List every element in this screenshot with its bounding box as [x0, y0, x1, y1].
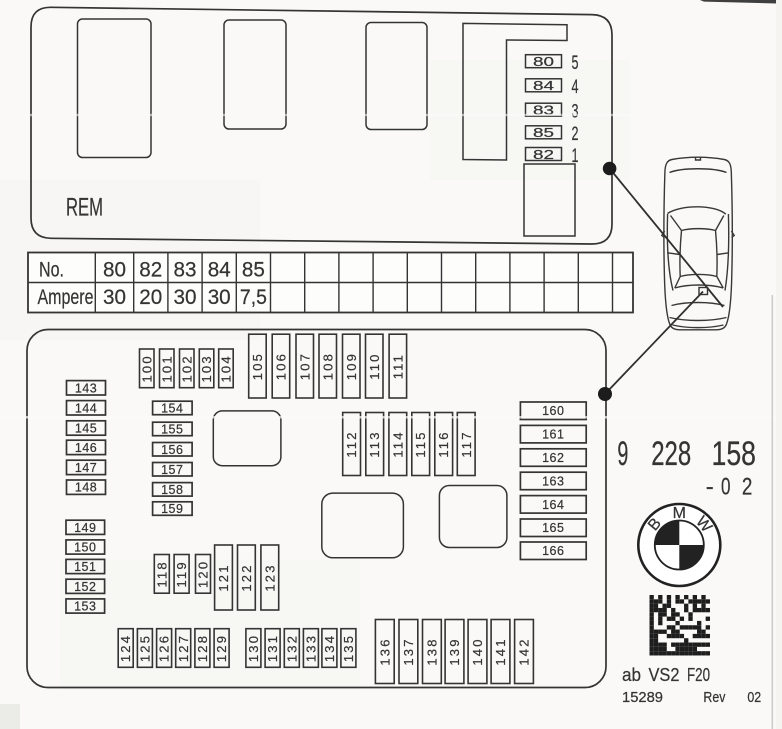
- svg-text:M: M: [673, 505, 686, 522]
- svg-text:30: 30: [208, 285, 231, 309]
- svg-text:138: 138: [424, 637, 439, 665]
- svg-text:REM: REM: [66, 194, 103, 222]
- svg-text:2: 2: [742, 474, 753, 501]
- svg-text:108: 108: [320, 352, 335, 380]
- svg-text:152: 152: [74, 580, 96, 594]
- svg-text:127: 127: [176, 634, 191, 662]
- svg-text:156: 156: [161, 443, 183, 457]
- svg-text:124: 124: [118, 634, 133, 662]
- svg-text:159: 159: [161, 502, 183, 516]
- svg-text:158: 158: [161, 483, 183, 497]
- svg-text:20: 20: [139, 285, 162, 309]
- svg-text:0: 0: [721, 474, 731, 501]
- svg-text:149: 149: [74, 521, 96, 535]
- svg-text:154: 154: [161, 401, 183, 415]
- svg-text:7,5: 7,5: [240, 285, 267, 309]
- svg-text:82: 82: [533, 147, 554, 162]
- svg-text:84: 84: [208, 258, 231, 282]
- svg-text:126: 126: [157, 634, 172, 662]
- svg-text:104: 104: [219, 354, 234, 382]
- svg-text:146: 146: [75, 441, 97, 455]
- svg-text:131: 131: [265, 634, 280, 662]
- svg-text:116: 116: [436, 430, 451, 457]
- svg-text:No.: No.: [39, 258, 64, 282]
- svg-text:132: 132: [284, 634, 299, 662]
- svg-text:153: 153: [74, 600, 96, 614]
- svg-text:105: 105: [250, 352, 265, 380]
- svg-text:125: 125: [138, 634, 153, 662]
- svg-text:141: 141: [493, 637, 508, 665]
- svg-text:2: 2: [572, 123, 579, 145]
- svg-text:165: 165: [542, 521, 564, 535]
- svg-text:110: 110: [367, 352, 382, 379]
- svg-text:140: 140: [470, 637, 485, 665]
- svg-text:84: 84: [533, 78, 554, 93]
- svg-text:134: 134: [322, 634, 337, 662]
- svg-text:F20: F20: [687, 665, 710, 685]
- svg-text:136: 136: [377, 637, 392, 665]
- svg-text:85: 85: [533, 125, 554, 140]
- svg-text:158: 158: [712, 435, 757, 473]
- svg-text:Rev: Rev: [703, 689, 725, 706]
- svg-text:117: 117: [459, 430, 474, 457]
- svg-text:119: 119: [174, 560, 189, 587]
- svg-text:130: 130: [246, 634, 261, 662]
- svg-text:80: 80: [103, 258, 126, 282]
- svg-text:133: 133: [303, 634, 318, 662]
- svg-text:145: 145: [75, 422, 97, 436]
- svg-text:129: 129: [214, 634, 229, 662]
- svg-text:102: 102: [179, 354, 194, 382]
- svg-text:137: 137: [401, 637, 416, 665]
- svg-text:5: 5: [572, 52, 579, 74]
- svg-text:114: 114: [390, 430, 405, 457]
- svg-text:113: 113: [367, 430, 382, 457]
- svg-text:9: 9: [617, 435, 628, 473]
- svg-text:151: 151: [74, 560, 96, 574]
- svg-text:144: 144: [75, 401, 97, 415]
- svg-text:30: 30: [174, 285, 197, 309]
- svg-text:106: 106: [274, 352, 289, 380]
- svg-text:3: 3: [572, 101, 579, 123]
- svg-text:163: 163: [542, 474, 564, 488]
- svg-text:228: 228: [651, 435, 691, 473]
- svg-text:111: 111: [390, 353, 405, 379]
- svg-text:4: 4: [572, 76, 579, 98]
- svg-text:VS2: VS2: [649, 665, 680, 685]
- svg-text:120: 120: [196, 560, 211, 588]
- svg-text:30: 30: [103, 285, 126, 309]
- svg-text:161: 161: [542, 428, 564, 442]
- svg-text:118: 118: [154, 560, 169, 587]
- svg-text:128: 128: [195, 634, 210, 662]
- svg-text:135: 135: [341, 634, 356, 662]
- svg-text:148: 148: [75, 481, 97, 495]
- svg-text:107: 107: [297, 352, 312, 380]
- svg-text:83: 83: [174, 258, 197, 282]
- svg-text:150: 150: [74, 541, 96, 555]
- svg-text:122: 122: [239, 563, 254, 591]
- svg-text:162: 162: [542, 451, 564, 465]
- svg-text:82: 82: [139, 258, 162, 282]
- svg-text:121: 121: [216, 563, 231, 591]
- svg-text:143: 143: [75, 381, 97, 395]
- svg-text:15289: 15289: [622, 689, 663, 706]
- svg-text:100: 100: [139, 354, 154, 382]
- svg-text:80: 80: [533, 54, 554, 69]
- svg-text:Ampere: Ampere: [38, 285, 94, 309]
- svg-text:85: 85: [242, 258, 265, 282]
- svg-text:101: 101: [159, 354, 174, 382]
- svg-text:ab: ab: [622, 665, 641, 685]
- svg-text:139: 139: [447, 637, 462, 665]
- svg-text:103: 103: [199, 354, 214, 382]
- svg-text:147: 147: [75, 461, 97, 475]
- svg-text:-: -: [706, 474, 714, 501]
- svg-text:112: 112: [344, 430, 359, 457]
- svg-text:166: 166: [542, 544, 564, 558]
- svg-text:142: 142: [517, 637, 532, 665]
- svg-text:109: 109: [344, 352, 359, 380]
- svg-text:155: 155: [161, 422, 183, 436]
- svg-text:115: 115: [413, 430, 428, 457]
- svg-text:164: 164: [542, 498, 564, 512]
- svg-text:123: 123: [262, 563, 277, 591]
- svg-text:02: 02: [747, 689, 761, 706]
- svg-text:157: 157: [161, 463, 183, 477]
